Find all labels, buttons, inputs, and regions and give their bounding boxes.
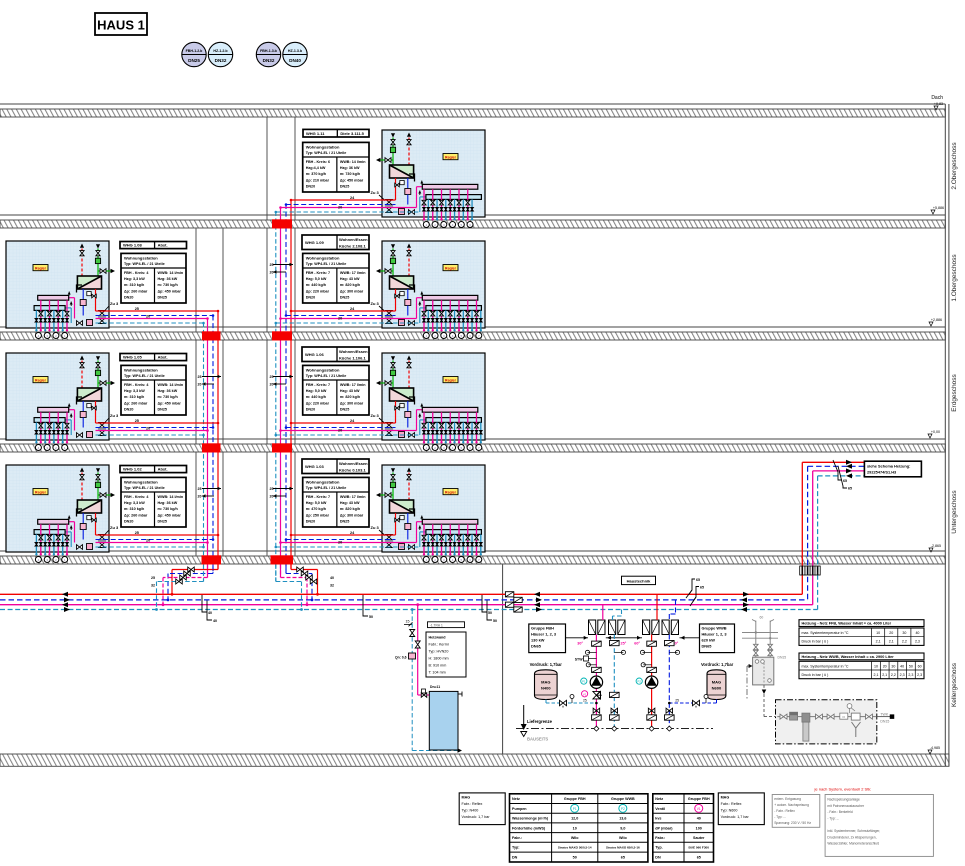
- svg-text:Wohnen/Essen: Wohnen/Essen: [339, 237, 368, 242]
- svg-text:Fabr.: Kermi: Fabr.: Kermi: [429, 643, 449, 647]
- svg-text:25°: 25°: [621, 642, 627, 646]
- svg-text:Δp: 300 mbar: Δp: 300 mbar: [340, 513, 364, 517]
- svg-text:P2: P2: [621, 807, 625, 811]
- svg-text:FBH - Kreis: 6: FBH - Kreis: 6: [306, 160, 330, 164]
- svg-text:Abst.: Abst.: [158, 243, 168, 248]
- svg-text:Regler: Regler: [35, 490, 47, 494]
- svg-text:Haustechnik: Haustechnik: [627, 578, 652, 583]
- svg-text:Wassermenge (m³/h): Wassermenge (m³/h): [512, 817, 549, 821]
- svg-text:620 kW: 620 kW: [702, 638, 716, 643]
- svg-text:65: 65: [697, 856, 701, 860]
- svg-text:kvs: kvs: [655, 817, 661, 821]
- svg-text:1.Obergeschoss: 1.Obergeschoss: [951, 254, 958, 302]
- svg-text:40: 40: [208, 611, 212, 615]
- svg-text:20: 20: [883, 664, 887, 668]
- svg-text:Kellergeschoss: Kellergeschoss: [951, 662, 958, 707]
- svg-text:Fabr.:: Fabr.:: [512, 836, 522, 840]
- svg-text:DN15: DN15: [880, 720, 889, 724]
- svg-text:DN25: DN25: [340, 407, 349, 411]
- svg-text:Wilo: Wilo: [571, 836, 579, 840]
- svg-text:Δp: 300 mbar: Δp: 300 mbar: [340, 401, 364, 405]
- svg-text:DN: DN: [655, 856, 661, 860]
- svg-text:50: 50: [488, 611, 492, 615]
- svg-text:20: 20: [270, 383, 274, 387]
- svg-text:Regler: Regler: [445, 155, 457, 159]
- svg-text:10: 10: [573, 826, 577, 830]
- svg-text:40: 40: [915, 631, 919, 635]
- svg-text:WHG 1.09: WHG 1.09: [305, 240, 324, 245]
- svg-text:WWB: 17 l/min: WWB: 17 l/min: [340, 495, 366, 499]
- svg-text:Δp: 210 mbar: Δp: 210 mbar: [306, 178, 330, 182]
- svg-text:m: 310 kg/h: m: 310 kg/h: [124, 395, 145, 399]
- svg-text:DN25: DN25: [158, 519, 167, 523]
- svg-text:40: 40: [213, 619, 217, 623]
- svg-text:DN20: DN20: [306, 295, 315, 299]
- svg-text:m: 440 kg/h: m: 440 kg/h: [306, 395, 327, 399]
- svg-text:V1: V1: [697, 807, 701, 811]
- svg-text:Hzg:4,4 kW: Hzg:4,4 kW: [306, 166, 326, 170]
- svg-text:20: 20: [889, 631, 893, 635]
- svg-text:Hzg: 3,3 kW: Hzg: 3,3 kW: [124, 277, 145, 281]
- svg-text:2,2: 2,2: [891, 673, 896, 677]
- svg-text:Vordruck: 1,7bar: Vordruck: 1,7bar: [701, 662, 734, 667]
- svg-text:DN65: DN65: [531, 644, 542, 649]
- svg-text:Δp: 260 mbar: Δp: 260 mbar: [124, 401, 148, 405]
- svg-text:Typ.: Typ.: [655, 846, 662, 850]
- svg-text:Δp: 220 mbar: Δp: 220 mbar: [306, 401, 330, 405]
- svg-text:Pumpen: Pumpen: [512, 807, 527, 811]
- svg-text:mit Patronenaustauscher: mit Patronenaustauscher: [827, 804, 865, 808]
- svg-text:MAG: MAG: [721, 796, 730, 800]
- svg-text:40: 40: [900, 664, 904, 668]
- svg-text:20: 20: [146, 426, 150, 430]
- svg-text:Fabr.: Reflex: Fabr.: Reflex: [462, 802, 483, 806]
- svg-text:10: 10: [876, 631, 880, 635]
- svg-text:DN15: DN15: [778, 656, 787, 660]
- svg-text:- Fabr.: Berkefeld: - Fabr.: Berkefeld: [827, 810, 852, 814]
- svg-text:Vordruck: 1,7 bar: Vordruck: 1,7 bar: [462, 815, 491, 819]
- svg-text:- Fabr.: Reflex: - Fabr.: Reflex: [774, 809, 795, 813]
- svg-text:32: 32: [151, 584, 155, 588]
- svg-text:25: 25: [151, 576, 155, 580]
- svg-text:Hzg: 5,0 kW: Hzg: 5,0 kW: [306, 277, 327, 281]
- svg-text:DN20: DN20: [306, 407, 315, 411]
- svg-text:50: 50: [909, 664, 913, 668]
- svg-text:Δp: 260 mbar: Δp: 260 mbar: [124, 513, 148, 517]
- svg-text:Gruppe FBH: Gruppe FBH: [688, 797, 710, 801]
- svg-text:WWB: 14 l/min: WWB: 14 l/min: [158, 383, 184, 387]
- svg-text:Spannung: 230 V / 50 Hz: Spannung: 230 V / 50 Hz: [774, 821, 811, 825]
- svg-text:Typ: WP4-EL / 21 Uteile: Typ: WP4-EL / 21 Uteile: [124, 486, 165, 490]
- svg-text:13,6: 13,6: [619, 817, 626, 821]
- svg-text:DN25: DN25: [340, 519, 349, 523]
- svg-text:DN32: DN32: [215, 58, 227, 63]
- svg-text:Vordruck: 1,7 bar: Vordruck: 1,7 bar: [721, 815, 750, 819]
- svg-text:Zu 3: Zu 3: [110, 525, 119, 530]
- svg-text:FBH - Kreis: 4: FBH - Kreis: 4: [124, 383, 149, 387]
- svg-text:Heizung - Netz FFB, Wasser Inh: Heizung - Netz FFB, Wasser Inhalt = ca. …: [802, 622, 892, 626]
- svg-text:50: 50: [573, 856, 577, 860]
- svg-text:Druck in bar ( ü ): Druck in bar ( ü ): [802, 673, 829, 677]
- svg-text:Regler: Regler: [445, 266, 457, 270]
- svg-text:Wohnungsstation: Wohnungsstation: [124, 256, 158, 261]
- svg-text:-1.TRH 1: -1.TRH 1: [430, 623, 443, 627]
- svg-text:20: 20: [198, 495, 202, 499]
- svg-text:Ventil: Ventil: [655, 807, 665, 811]
- svg-text:100: 100: [696, 826, 702, 830]
- svg-text:BUE 060 F300: BUE 060 F300: [689, 846, 710, 850]
- svg-text:2,3: 2,3: [908, 673, 913, 677]
- svg-text:DN25: DN25: [340, 184, 349, 188]
- svg-text:WHG 1.02: WHG 1.02: [123, 467, 142, 472]
- svg-text:Δp: 450 mbar: Δp: 450 mbar: [340, 178, 364, 182]
- svg-text:Gruppe FBH: Gruppe FBH: [531, 626, 554, 631]
- svg-text:WWB: 17 l/min: WWB: 17 l/min: [340, 271, 366, 275]
- svg-text:Fabr.: Reflex: Fabr.: Reflex: [721, 802, 742, 806]
- svg-text:DN40: DN40: [289, 58, 301, 63]
- svg-text:Häuser 1, 2, 3: Häuser 1, 2, 3: [702, 632, 728, 637]
- svg-text:Wohnen/Essen: Wohnen/Essen: [339, 461, 368, 466]
- svg-text:DN20: DN20: [124, 519, 133, 523]
- svg-text:25: 25: [198, 375, 202, 379]
- svg-text:Küche 1.106.1: Küche 1.106.1: [339, 355, 366, 360]
- svg-text:20: 20: [198, 383, 202, 387]
- svg-text:WWB: 14 l/min: WWB: 14 l/min: [158, 271, 184, 275]
- svg-text:Hzg: 5,0 kW: Hzg: 5,0 kW: [306, 501, 327, 505]
- svg-text:Typ: WP4-EL / 21 Uteile: Typ: WP4-EL / 21 Uteile: [124, 262, 165, 266]
- svg-text:WHG 1.08: WHG 1.08: [123, 243, 142, 248]
- svg-text:2,1: 2,1: [882, 673, 887, 677]
- svg-text:MAG: MAG: [462, 796, 471, 800]
- svg-text:m: 730 kg/h: m: 730 kg/h: [158, 283, 179, 287]
- svg-text:Zu 3: Zu 3: [110, 301, 119, 306]
- svg-text:Hzg: 43 kW: Hzg: 43 kW: [340, 501, 360, 505]
- svg-text:50: 50: [369, 615, 373, 619]
- svg-text:inkl. Systemtrenner, Schmutzfä: inkl. Systemtrenner, Schmutzfänger,: [827, 829, 880, 833]
- svg-text:Zu 3: Zu 3: [371, 190, 380, 195]
- svg-text:2,3: 2,3: [917, 673, 922, 677]
- svg-text:siehe Schema Heizung:: siehe Schema Heizung:: [867, 464, 910, 469]
- svg-text:STW: STW: [575, 658, 583, 662]
- svg-text:Typ: WP4-EL / 21 Uteile: Typ: WP4-EL / 21 Uteile: [306, 374, 347, 378]
- svg-text:Netz: Netz: [512, 797, 520, 801]
- svg-text:20: 20: [270, 495, 274, 499]
- svg-text:Δp: 450 mbar: Δp: 450 mbar: [158, 289, 182, 293]
- svg-text:Hzg: 36 kW: Hzg: 36 kW: [158, 277, 178, 281]
- svg-text:DN25: DN25: [188, 58, 200, 63]
- svg-text:WWB: 14 l/min: WWB: 14 l/min: [340, 160, 366, 164]
- svg-text:Küche 0.103.1: Küche 0.103.1: [339, 467, 366, 472]
- svg-text:DN25: DN25: [340, 295, 349, 299]
- svg-text:Diele 3.111.5: Diele 3.111.5: [340, 131, 364, 136]
- svg-text:Wohnungsstation: Wohnungsstation: [306, 145, 340, 150]
- svg-text:Abst.: Abst.: [158, 355, 168, 360]
- svg-text:MAG: MAG: [541, 680, 550, 685]
- svg-text:20: 20: [338, 206, 342, 210]
- svg-text:Wohnungsstation: Wohnungsstation: [124, 480, 158, 485]
- svg-text:m: 370 kg/h: m: 370 kg/h: [306, 172, 327, 176]
- svg-text:20: 20: [338, 317, 342, 321]
- svg-text:Vordruck: 1,7bar: Vordruck: 1,7bar: [530, 662, 563, 667]
- svg-text:FBH - Kreis: 7: FBH - Kreis: 7: [306, 271, 330, 275]
- svg-text:m: 820 kg/h: m: 820 kg/h: [340, 395, 361, 399]
- svg-text:Gruppe FBH: Gruppe FBH: [564, 797, 586, 801]
- svg-text:FI: FI: [842, 715, 845, 719]
- svg-text:FBH-1.2.b: FBH-1.2.b: [186, 49, 204, 53]
- svg-text:25: 25: [583, 699, 587, 703]
- svg-text:FBH-1.3.b: FBH-1.3.b: [260, 49, 278, 53]
- svg-text:25: 25: [675, 699, 679, 703]
- svg-text:TWK: TWK: [880, 713, 888, 717]
- svg-text:2,3: 2,3: [915, 640, 920, 644]
- svg-text:FBH - Kreis: 7: FBH - Kreis: 7: [306, 383, 330, 387]
- svg-text:-4,985: -4,985: [930, 746, 940, 750]
- svg-text:Hzg: 36 kW: Hzg: 36 kW: [158, 389, 178, 393]
- svg-text:Förderhöhe (mWS): Förderhöhe (mWS): [512, 826, 546, 830]
- svg-text:20: 20: [338, 541, 342, 545]
- svg-text:Hzg: 5,0 kW: Hzg: 5,0 kW: [306, 389, 327, 393]
- svg-text:Wilo: Wilo: [619, 836, 627, 840]
- svg-text:+ autom. Nachspeisung: + autom. Nachspeisung: [774, 803, 809, 807]
- svg-text:30: 30: [891, 664, 895, 668]
- svg-text:Δp: 450 mbar: Δp: 450 mbar: [158, 401, 182, 405]
- svg-text:Erdgeschoss: Erdgeschoss: [951, 373, 958, 411]
- svg-text:Typ:: Typ:: [512, 846, 520, 850]
- svg-text:N400: N400: [541, 686, 551, 691]
- svg-text:Wohnungsstation: Wohnungsstation: [306, 256, 340, 261]
- svg-text:DN20: DN20: [124, 295, 133, 299]
- svg-text:Δp: 250 mbar: Δp: 250 mbar: [306, 513, 330, 517]
- svg-text:Typ: WP4-EL / 21 Uteile: Typ: WP4-EL / 21 Uteile: [306, 262, 347, 266]
- svg-text:60°: 60°: [634, 642, 640, 646]
- svg-text:Δp: 220 mbar: Δp: 220 mbar: [306, 289, 330, 293]
- svg-text:9,0: 9,0: [620, 826, 625, 830]
- svg-text:Wohnungsstation: Wohnungsstation: [124, 368, 158, 373]
- svg-text:Abst.: Abst.: [158, 467, 168, 472]
- svg-text:Stratos MAXO 65/0,5-16: Stratos MAXO 65/0,5-16: [606, 846, 640, 850]
- svg-text:Gruppe WWB: Gruppe WWB: [702, 626, 727, 631]
- svg-text:Wohnungsstation: Wohnungsstation: [306, 480, 340, 485]
- svg-text:+5,886: +5,886: [933, 206, 944, 210]
- svg-text:65: 65: [848, 487, 852, 491]
- svg-text:Stratos MAXO 50/0,5-14: Stratos MAXO 50/0,5-14: [558, 846, 592, 850]
- svg-text:Wohnen/Essen: Wohnen/Essen: [339, 349, 368, 354]
- svg-text:m: 730 kg/h: m: 730 kg/h: [158, 507, 179, 511]
- svg-text:WHG 1.05: WHG 1.05: [123, 355, 142, 360]
- svg-text:30°: 30°: [577, 642, 583, 646]
- svg-text:Liefergrenze: Liefergrenze: [527, 719, 553, 724]
- svg-text:Fabr.:: Fabr.:: [655, 836, 665, 840]
- svg-text:Typ: HVN20: Typ: HVN20: [429, 650, 449, 654]
- svg-text:2,1: 2,1: [889, 640, 894, 644]
- svg-text:2.Obergeschoss: 2.Obergeschoss: [951, 142, 958, 190]
- svg-text:Hzg: 36 kW: Hzg: 36 kW: [158, 501, 178, 505]
- svg-text:DN20: DN20: [306, 519, 315, 523]
- svg-text:DN20: DN20: [124, 407, 133, 411]
- svg-text:BAUSEITS: BAUSEITS: [527, 737, 548, 742]
- svg-text:HZ-1.2.b: HZ-1.2.b: [213, 49, 228, 53]
- svg-text:+0,00: +0,00: [931, 430, 940, 434]
- svg-text:25: 25: [135, 531, 139, 535]
- svg-text:Heizung - Netz WWB, Wasser Inh: Heizung - Netz WWB, Wasser Inhalt = ca. …: [802, 655, 895, 659]
- svg-text:25: 25: [270, 263, 274, 267]
- svg-text:- Typ: ...: - Typ: ...: [827, 816, 839, 820]
- svg-text:60: 60: [918, 664, 922, 668]
- svg-text:Hzg: 43 kW: Hzg: 43 kW: [340, 277, 360, 281]
- svg-text:25: 25: [270, 375, 274, 379]
- svg-text:WWB: 17 l/min: WWB: 17 l/min: [340, 383, 366, 387]
- svg-text:Wasserzähler, Manometeranschlu: Wasserzähler, Manometeranschluß: [827, 842, 879, 846]
- svg-text:Dach: Dach: [931, 95, 943, 101]
- svg-text:Regler: Regler: [35, 266, 47, 270]
- svg-text:Heizwand: Heizwand: [429, 636, 447, 640]
- svg-text:P1: P1: [573, 807, 577, 811]
- svg-text:25: 25: [198, 487, 202, 491]
- svg-text:dP (mbar): dP (mbar): [655, 826, 673, 830]
- svg-text:FBH - Kreis: 4: FBH - Kreis: 4: [124, 271, 149, 275]
- svg-text:Druckminderer, 2x Absperrungen: Druckminderer, 2x Absperrungen,: [827, 835, 876, 839]
- svg-text:20: 20: [338, 429, 342, 433]
- svg-text:Regler: Regler: [35, 378, 47, 382]
- svg-text:30: 30: [902, 631, 906, 635]
- svg-text:Δp: 450 mbar: Δp: 450 mbar: [158, 513, 182, 517]
- svg-text:2,1: 2,1: [873, 673, 878, 677]
- svg-text:Küche 2.108.1: Küche 2.108.1: [339, 243, 366, 248]
- svg-text:FBH - Kreis: 4: FBH - Kreis: 4: [124, 495, 149, 499]
- svg-text:Wohnungsstation: Wohnungsstation: [306, 368, 340, 373]
- svg-text:-2,865: -2,865: [931, 544, 941, 548]
- svg-text:65: 65: [843, 479, 847, 483]
- svg-text:Hzg: 36 kW: Hzg: 36 kW: [340, 166, 360, 170]
- svg-text:T: 104 mm: T: 104 mm: [429, 671, 446, 675]
- svg-text:25: 25: [135, 307, 139, 311]
- svg-text:Typ: WP4-EL / 21 Uteile: Typ: WP4-EL / 21 Uteile: [124, 374, 165, 378]
- svg-text:m: 820 kg/h: m: 820 kg/h: [340, 283, 361, 287]
- svg-text:40: 40: [697, 817, 701, 821]
- svg-text:DN65: DN65: [702, 644, 713, 649]
- svg-text:m: 470 kg/h: m: 470 kg/h: [306, 507, 327, 511]
- svg-text:Typ: N600: Typ: N600: [721, 809, 738, 813]
- svg-text:P1: P1: [582, 680, 586, 684]
- svg-text:max. Systemtemperatur in °C: max. Systemtemperatur in °C: [802, 664, 849, 668]
- svg-text:29225474/S1.H3: 29225474/S1.H3: [867, 470, 897, 475]
- svg-text:m: 310 kg/h: m: 310 kg/h: [124, 507, 145, 511]
- svg-text:50: 50: [493, 619, 497, 623]
- svg-text:Qn: 0,6: Qn: 0,6: [395, 655, 407, 659]
- svg-text:m: 440 kg/h: m: 440 kg/h: [306, 283, 327, 287]
- svg-text:Regler: Regler: [445, 378, 457, 382]
- svg-text:130 kW: 130 kW: [531, 638, 545, 643]
- svg-text:max. Systemtemperatur in °C: max. Systemtemperatur in °C: [802, 631, 849, 635]
- svg-text:m: 730 kg/h: m: 730 kg/h: [340, 172, 361, 176]
- svg-text:20: 20: [146, 538, 150, 542]
- svg-text:je nach System, eventuell 2 St: je nach System, eventuell 2 Stk:: [814, 787, 872, 792]
- svg-text:Dn=11: Dn=11: [430, 685, 440, 689]
- svg-text:20: 20: [146, 314, 150, 318]
- svg-text:DN: DN: [512, 856, 518, 860]
- svg-text:WHG 1.03: WHG 1.03: [305, 464, 324, 469]
- svg-text:H: 1800 mm: H: 1800 mm: [429, 657, 449, 661]
- svg-text:extern. Entgasung: extern. Entgasung: [774, 797, 801, 801]
- svg-text:MAG: MAG: [712, 680, 721, 685]
- svg-text:DN25: DN25: [158, 407, 167, 411]
- svg-text:Regler: Regler: [445, 490, 457, 494]
- svg-text:m: 820 kg/h: m: 820 kg/h: [340, 507, 361, 511]
- svg-text:65: 65: [696, 578, 700, 582]
- svg-text:Nachspeisungsanlage: Nachspeisungsanlage: [827, 798, 860, 802]
- svg-text:- Typ: ...: - Typ: ...: [774, 815, 786, 819]
- svg-text:Typ: WP4-EL / 21 Uteile: Typ: WP4-EL / 21 Uteile: [306, 151, 347, 155]
- svg-text:40: 40: [330, 576, 334, 580]
- svg-text:32: 32: [330, 584, 334, 588]
- svg-text:12,0: 12,0: [571, 817, 578, 821]
- svg-text:Netz: Netz: [655, 797, 663, 801]
- svg-text:Gruppe WWB: Gruppe WWB: [611, 797, 635, 801]
- svg-text:Zu 3: Zu 3: [371, 525, 380, 530]
- svg-text:60: 60: [760, 616, 764, 620]
- svg-text:20: 20: [270, 271, 274, 275]
- svg-text:HZ-1.3.b: HZ-1.3.b: [288, 49, 303, 53]
- svg-text:Zu 3: Zu 3: [371, 301, 380, 306]
- svg-text:WHG 1.11: WHG 1.11: [306, 131, 325, 136]
- svg-text:m: 310 kg/h: m: 310 kg/h: [124, 283, 145, 287]
- svg-text:Hzg: 3,3 kW: Hzg: 3,3 kW: [124, 389, 145, 393]
- svg-text:Untergeschoss: Untergeschoss: [951, 490, 958, 534]
- svg-text:2,1: 2,1: [876, 640, 881, 644]
- svg-text:65: 65: [621, 856, 625, 860]
- svg-text:Druck in bar ( ü ): Druck in bar ( ü ): [802, 640, 829, 644]
- svg-text:10: 10: [874, 664, 878, 668]
- svg-text:DN20: DN20: [306, 184, 315, 188]
- svg-text:Häuser 1, 2, 3: Häuser 1, 2, 3: [531, 632, 557, 637]
- svg-text:15: 15: [406, 620, 410, 624]
- svg-text:Zu 3: Zu 3: [110, 413, 119, 418]
- svg-text:FBH - Kreis: 7: FBH - Kreis: 7: [306, 495, 330, 499]
- svg-text:P2: P2: [637, 680, 641, 684]
- svg-text:+9,83: +9,83: [934, 102, 943, 106]
- svg-text:WHG 1.06: WHG 1.06: [305, 352, 324, 357]
- svg-text:Sauter: Sauter: [693, 836, 705, 840]
- svg-text:Δp: 300 mbar: Δp: 300 mbar: [340, 289, 364, 293]
- svg-text:N600: N600: [712, 686, 722, 691]
- svg-text:Zu 3: Zu 3: [371, 413, 380, 418]
- svg-text:Typ: WP4-EL / 21 Uteile: Typ: WP4-EL / 21 Uteile: [306, 486, 347, 490]
- svg-text:B: 910 mm: B: 910 mm: [429, 664, 447, 668]
- svg-text:DN25: DN25: [158, 295, 167, 299]
- svg-text:Δp: 260 mbar: Δp: 260 mbar: [124, 289, 148, 293]
- svg-text:2,3: 2,3: [900, 673, 905, 677]
- svg-text:Typ: N400: Typ: N400: [462, 809, 479, 813]
- svg-text:m: 730 kg/h: m: 730 kg/h: [158, 395, 179, 399]
- svg-text:DN32: DN32: [263, 58, 275, 63]
- svg-text:HAUS 1: HAUS 1: [97, 18, 145, 33]
- svg-text:Hzg: 3,3 kW: Hzg: 3,3 kW: [124, 501, 145, 505]
- svg-text:25: 25: [270, 487, 274, 491]
- svg-text:2,2: 2,2: [902, 640, 907, 644]
- svg-text:V1: V1: [583, 692, 587, 696]
- svg-text:65: 65: [700, 585, 704, 589]
- svg-text:25: 25: [135, 419, 139, 423]
- svg-text:Hzg: 43 kW: Hzg: 43 kW: [340, 389, 360, 393]
- svg-text:+2,886: +2,886: [931, 318, 942, 322]
- svg-text:WWB: 14 l/min: WWB: 14 l/min: [158, 495, 184, 499]
